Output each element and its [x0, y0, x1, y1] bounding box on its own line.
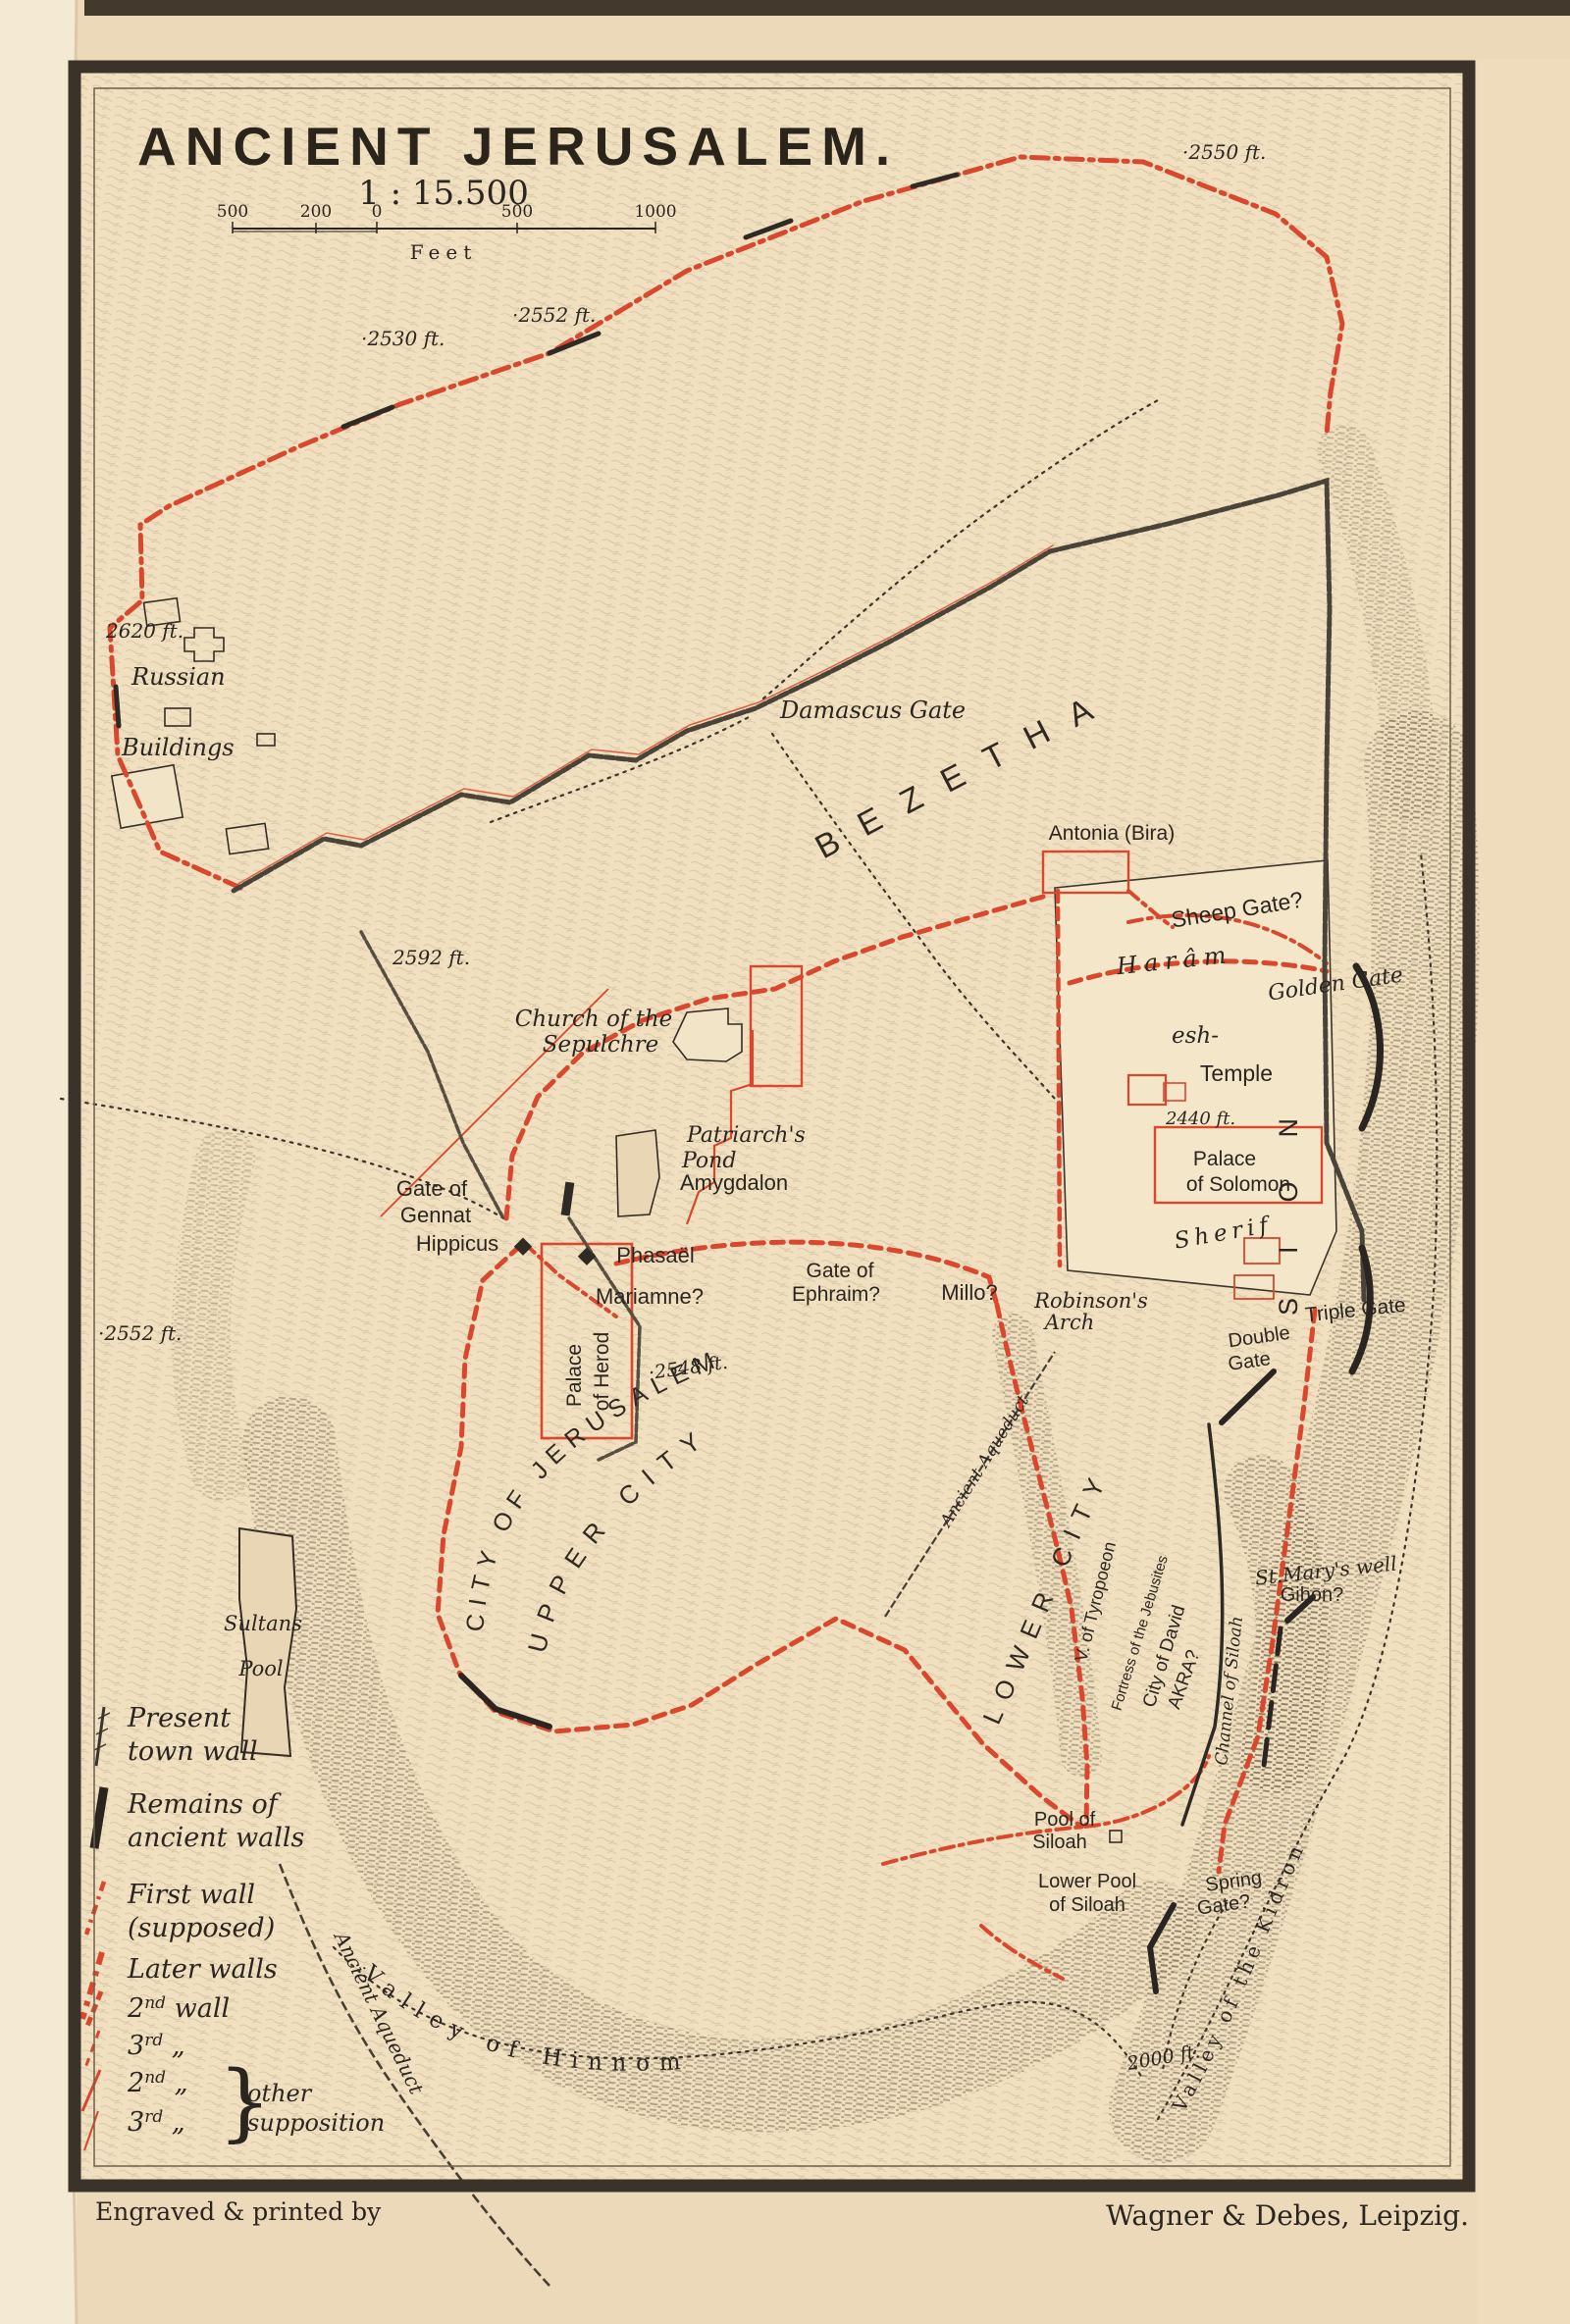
map-title: ANCIENT JERUSALEM.	[137, 116, 899, 177]
gate-of-gennat-label: Gennat	[400, 1203, 471, 1227]
legend-2nd-other-rest: „	[166, 2068, 188, 2098]
legend-other-supposition-label: other	[247, 2080, 313, 2107]
gate-of-ephraim-label: Gate of	[807, 1260, 874, 1282]
scale-tick: 500	[217, 202, 248, 222]
legend-present-wall-label: town wall	[128, 1736, 258, 1767]
legend-2nd-sup: nd	[144, 1993, 166, 2013]
legend-2nd-rest: wall	[166, 1993, 230, 2024]
russian-buildings-label: Buildings	[121, 734, 235, 761]
legend-later-walls-label: Later walls	[127, 1954, 278, 1985]
adjacent-plate-edge	[84, 0, 1570, 16]
engraver-credit: Engraved & printed by	[95, 2197, 382, 2226]
pool-of-siloah-label: Pool of	[1034, 1809, 1096, 1831]
palace-of-herod-label: of Herod	[591, 1332, 613, 1412]
pool-of-siloah-label: Siloah	[1032, 1832, 1087, 1853]
patriarchs-pond-shape	[616, 1130, 659, 1216]
elevation-label: 2440 ft.	[1165, 1109, 1235, 1129]
church-of-sepulchre-label: Church of the	[515, 1007, 673, 1032]
legend-3rd-num: 3	[128, 2031, 144, 2061]
gihon-label: Gihon?	[1281, 1584, 1344, 1606]
elevation-label: ·2550 ft.	[1182, 140, 1266, 164]
legend-2nd-other-sup: nd	[144, 2068, 166, 2088]
legend-first-wall-label: (supposed)	[128, 1913, 275, 1943]
hippicus-label: Hippicus	[416, 1231, 498, 1256]
scale-tick: 0	[372, 202, 383, 222]
damascus-gate-label: Damascus Gate	[779, 697, 966, 724]
millo-label: Millo?	[941, 1280, 997, 1305]
legend-first-wall-label: First wall	[127, 1880, 255, 1910]
scale-tick: 200	[300, 202, 332, 222]
sultans-pool-shape	[239, 1528, 296, 1756]
temple-label: Temple	[1200, 1060, 1273, 1086]
legend-remains-label: ancient walls	[128, 1823, 304, 1853]
lower-pool-label: of Siloah	[1049, 1894, 1125, 1916]
russian-buildings-label: Russian	[131, 663, 226, 691]
russian-building-large	[112, 765, 183, 828]
legend-3rd-rest: „	[163, 2031, 185, 2061]
legend-3rd-other-rest: „	[163, 2107, 185, 2138]
church-of-sepulchre-label: Sepulchre	[543, 1032, 659, 1058]
publisher-credit: Wagner & Debes, Leipzig.	[1106, 2199, 1469, 2232]
robinsons-arch-label: Robinson's	[1033, 1289, 1148, 1313]
haram-esh-label: esh-	[1172, 1023, 1219, 1049]
elevation-label: ·2552 ft.	[98, 1321, 182, 1345]
scale-tick: 1000	[634, 202, 676, 222]
palace-of-solomon-label: Palace	[1193, 1148, 1256, 1170]
map-image: BEZETHA CITY OF JERUSALEM UPPER CITY LOW…	[0, 0, 1570, 2324]
legend-2nd-other-num: 2	[127, 2068, 144, 2098]
elevation-label: 2592 ft.	[392, 946, 470, 969]
legend-3rd-other-sup: rd	[144, 2107, 163, 2127]
phasael-label: Phasaël	[616, 1243, 695, 1267]
legend-present-wall-label: Present	[127, 1703, 231, 1733]
robinsons-arch-label: Arch	[1043, 1311, 1095, 1334]
mariamne-label: Mariamne?	[596, 1284, 704, 1309]
scale-tick: 500	[501, 202, 533, 222]
legend-remains-label: Remains of	[127, 1789, 282, 1820]
lower-pool-label: Lower Pool	[1038, 1871, 1136, 1892]
sultans-pool-label: Pool	[237, 1657, 283, 1680]
haram-west-wall	[1058, 891, 1060, 1265]
gate-of-ephraim-label: Ephraim?	[792, 1283, 880, 1306]
west-slope-shade	[201, 1158, 226, 1472]
scale-unit: Feet	[410, 240, 478, 264]
patriarchs-pond-label: Patriarch's	[686, 1123, 806, 1148]
sion-label: SION	[1274, 1074, 1303, 1316]
elevation-label: 2620 ft.	[105, 619, 183, 643]
elevation-label: ·2530 ft.	[361, 327, 445, 350]
gate-of-gennat-label: Gate of	[396, 1176, 468, 1201]
elevation-label: ·2552 ft.	[512, 303, 596, 327]
legend-3rd-other-num: 3	[128, 2107, 144, 2138]
legend-2nd-wall-label: 2nd wall	[127, 1993, 230, 2024]
legend-other-supposition-label: supposition	[247, 2109, 385, 2137]
scanned-map-page: { "title": "ANCIENT JERUSALEM.", "scale"…	[0, 0, 1570, 2324]
palace-of-herod-label: Palace	[563, 1344, 586, 1407]
sultans-pool-label: Sultans	[224, 1612, 302, 1635]
legend-3rd-sup: rd	[144, 2031, 163, 2050]
amygdalon-label: Amygdalon	[680, 1170, 788, 1195]
legend-2nd-num: 2	[127, 1993, 144, 2024]
antonia-label: Antonia (Bira)	[1049, 822, 1175, 845]
